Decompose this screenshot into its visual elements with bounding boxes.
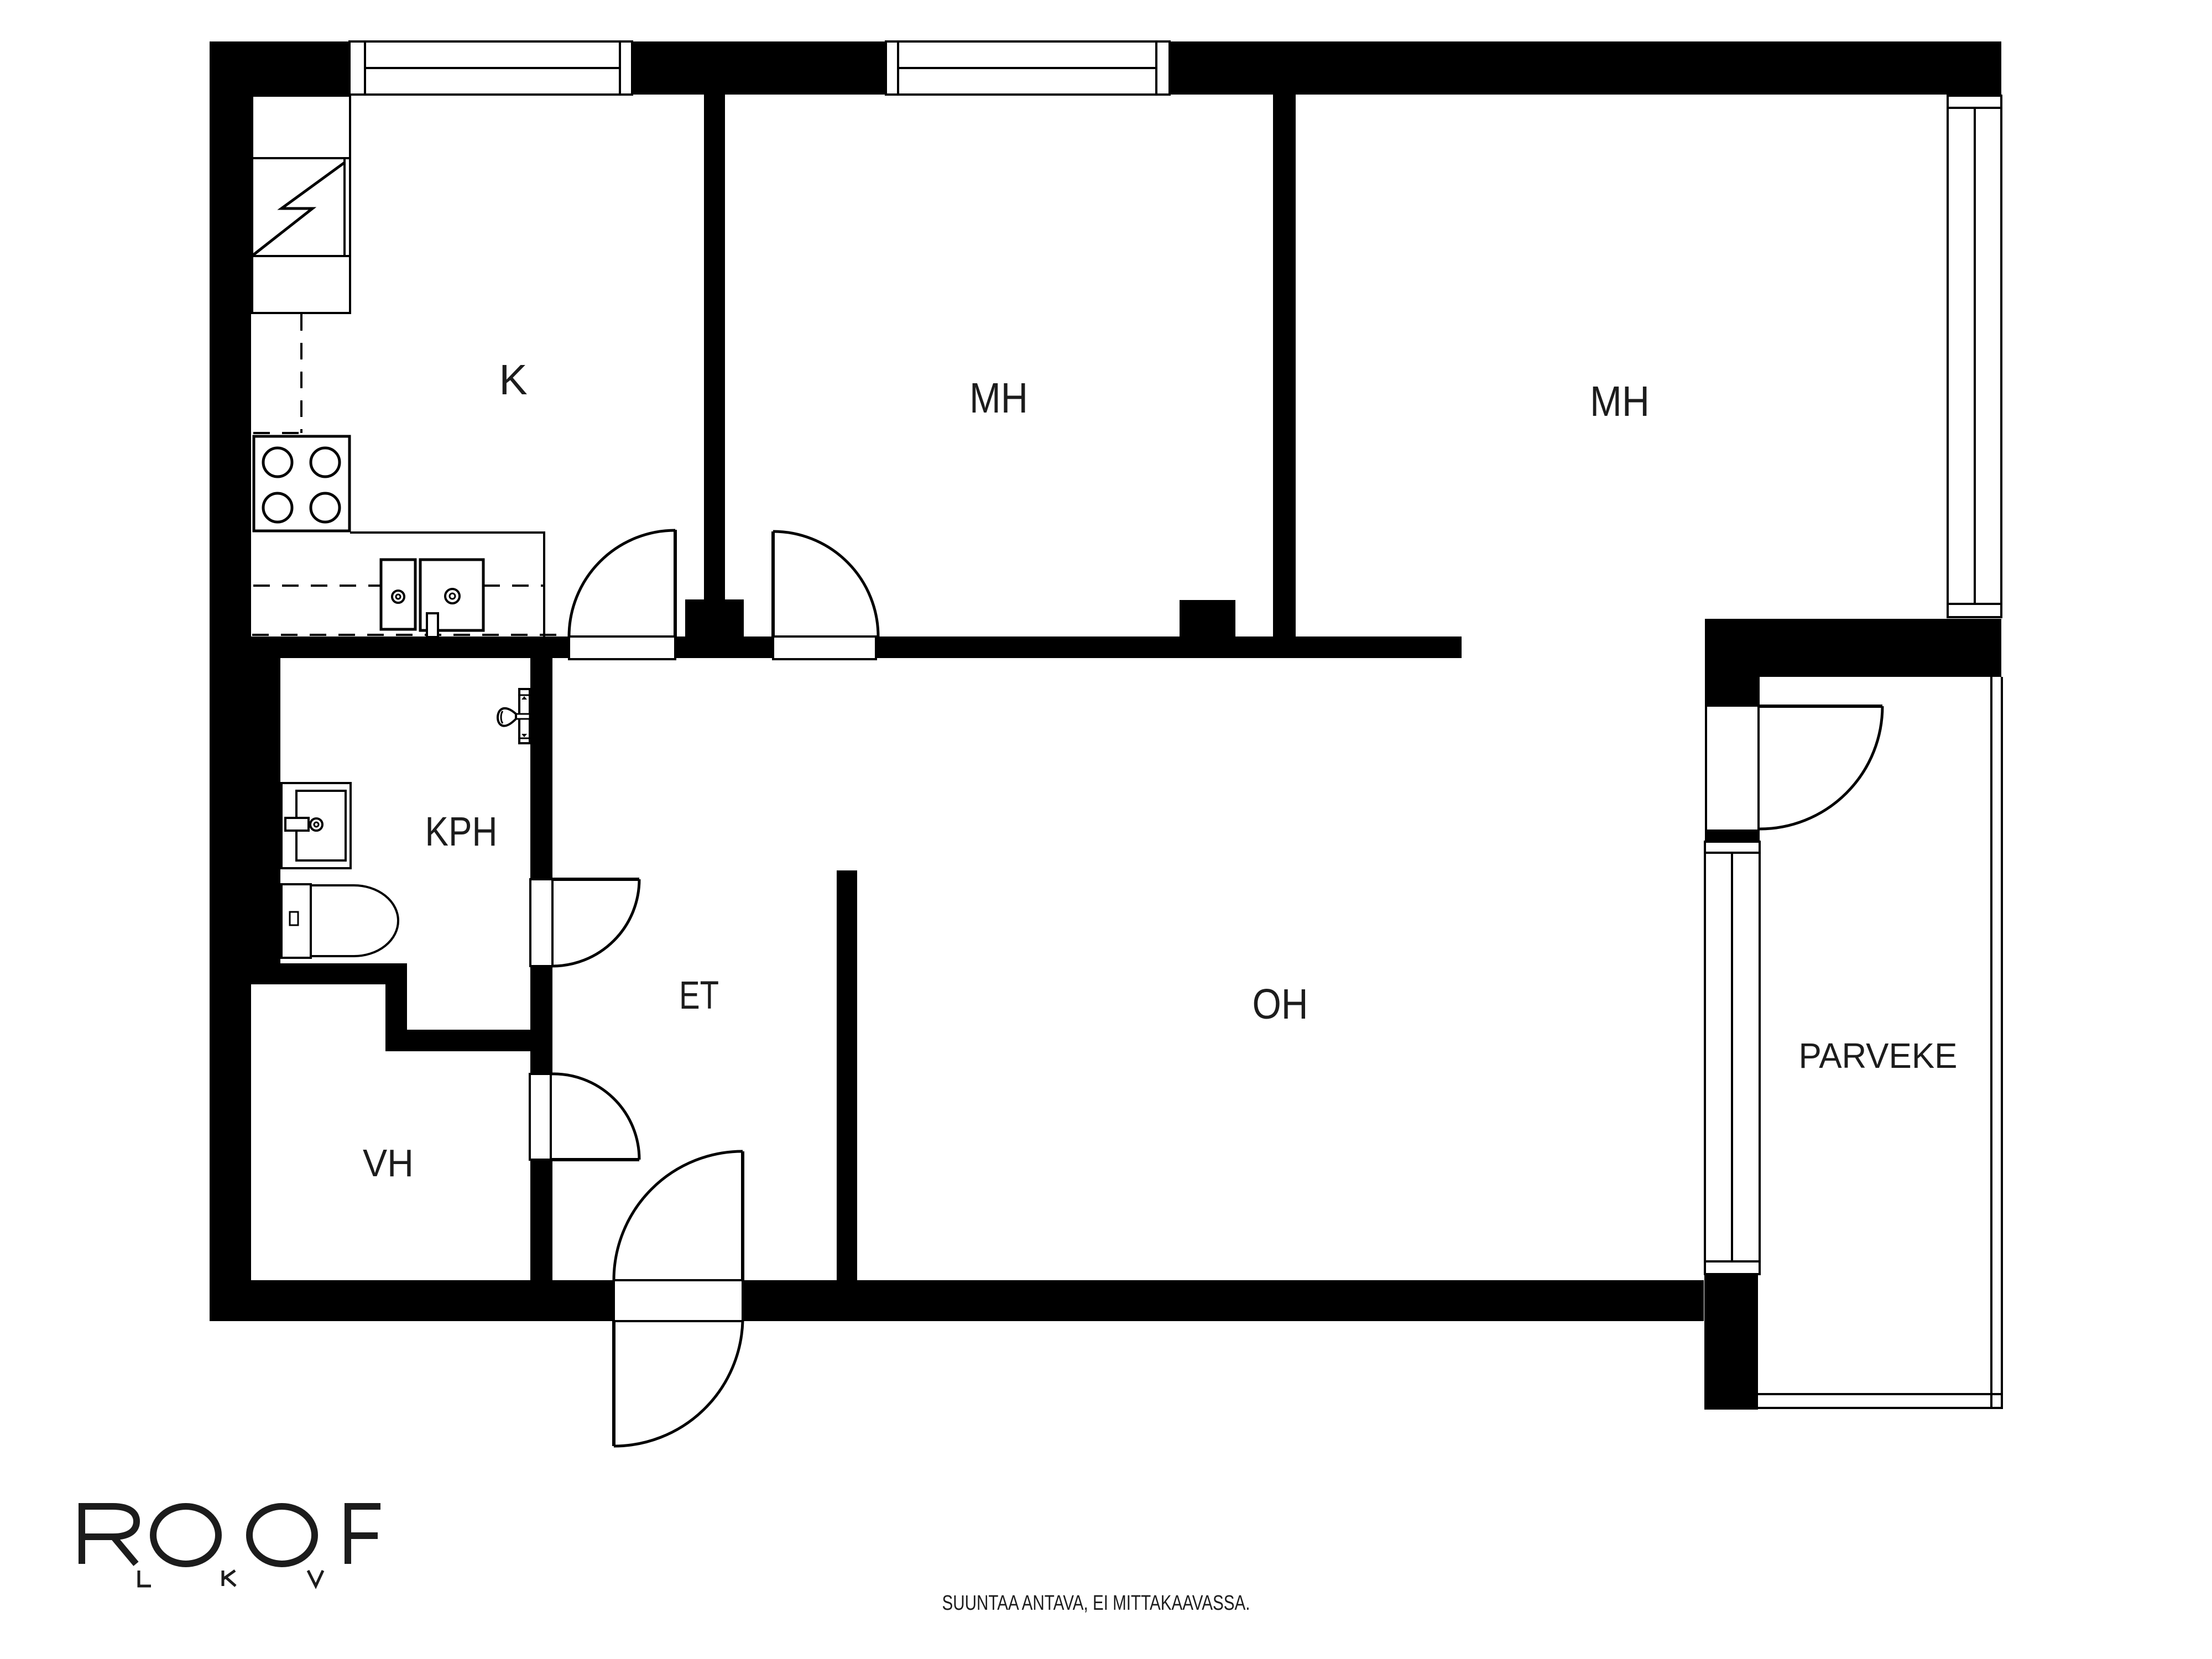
svg-text:PARVEKE: PARVEKE xyxy=(1799,1036,1958,1076)
svg-text:MH: MH xyxy=(969,374,1028,422)
svg-text:SUUNTAA ANTAVA, EI MITTAKAAVAS: SUUNTAA ANTAVA, EI MITTAKAAVASSA. xyxy=(942,1592,1250,1615)
svg-text:OH: OH xyxy=(1253,980,1308,1028)
svg-text:VH: VH xyxy=(363,1141,414,1185)
svg-text:MH: MH xyxy=(1590,378,1650,425)
svg-text:K: K xyxy=(499,356,527,404)
svg-text:ET: ET xyxy=(679,974,719,1018)
svg-text:KPH: KPH xyxy=(425,808,498,854)
